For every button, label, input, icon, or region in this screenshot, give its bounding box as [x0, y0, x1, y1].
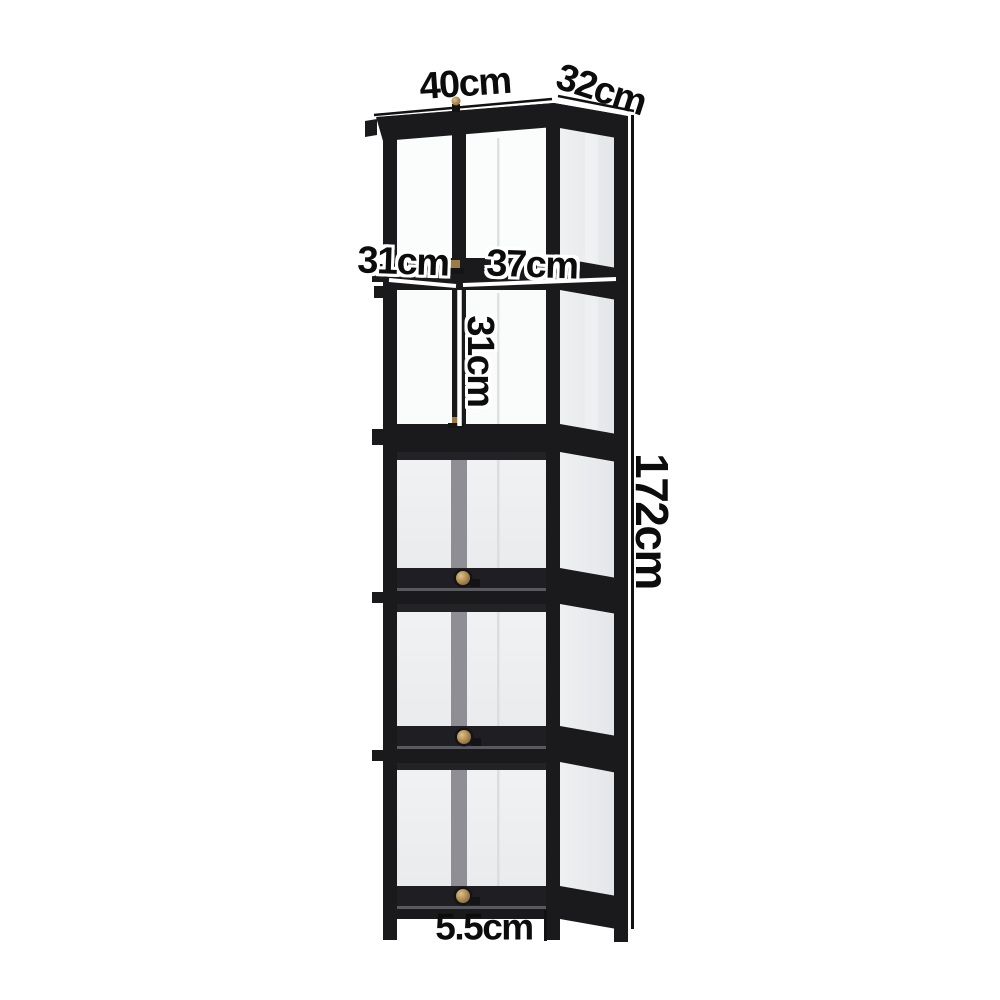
dimension-label-shelf-left: 31cm: [357, 241, 449, 282]
dimension-label-top-width: 40cm: [418, 62, 512, 106]
glass-door-tier-5: [397, 762, 546, 886]
cabinet-tier-1-open: [397, 123, 546, 258]
glass-door-tier-4: [397, 604, 546, 726]
dimension-label-shelf-right: 37cm: [486, 244, 578, 285]
glass-door-tier-3: [397, 452, 546, 568]
dimension-label-tier-height: 31cm: [461, 315, 499, 406]
dimension-label-total-height: 172cm: [629, 453, 675, 589]
dimension-label-leg-height: 5.5cm: [435, 909, 532, 946]
product-dimension-image: 40cm 32cm 31cm 37cm 31cm 172cm 5.5cm: [0, 0, 1000, 1000]
cabinet-side-glass: [560, 127, 614, 896]
cabinet-illustration: [0, 0, 1000, 1000]
